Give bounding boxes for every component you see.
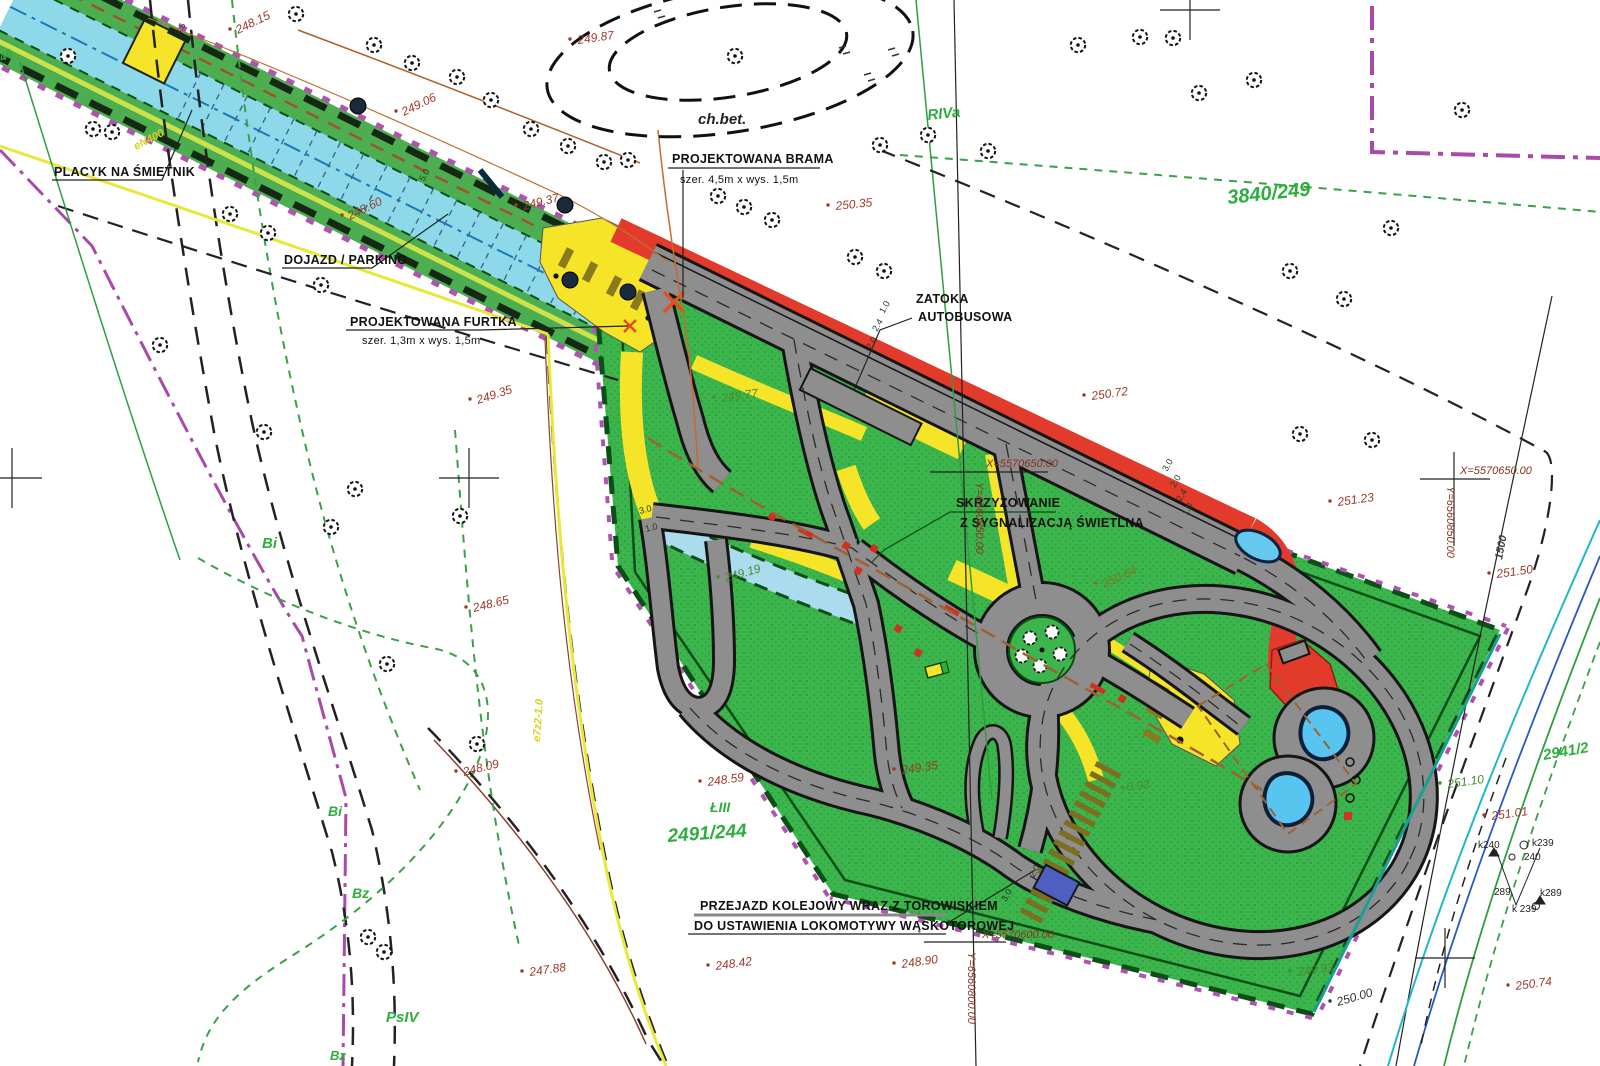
spot-elevation-dot [568,37,571,40]
coord-c3-y: Y=6560800.00 [965,952,977,1025]
coord-c3-x: X=5570600.00 [981,929,1055,941]
spot-elevation-dot [1328,499,1331,502]
survey-label: 240 [1524,852,1541,863]
spot-elevation-dot [468,397,471,400]
parcel-label: Bz [330,1048,346,1063]
spot-elevation-dot [706,963,709,966]
spot-elevation-dot [892,767,895,770]
survey-label: k 239 [1512,904,1537,915]
dojazd-label: DOJAZD / PARKING [284,253,407,267]
spot-elevation-dot [1328,999,1331,1002]
furtka-label: PROJEKTOWANA FURTKA [350,315,517,329]
coord-c2-x: X=5570650.00 [1459,465,1533,477]
spot-elevation-dot [1438,781,1441,784]
zatoka-label-2: AUTOBUSOWA [918,310,1012,324]
spot-elevation-dot [228,27,231,30]
spot-elevation-dot [520,969,523,972]
spot-elevation-dot [712,395,715,398]
parcel-label: Bi [262,535,278,552]
parcel-label: ŁIII [709,799,731,815]
brama-size-label: szer. 4,5m x wys. 1,5m [680,174,798,186]
parcel-label: PsIV [386,1009,421,1026]
skrzyzowanie-label-1: SKRZYŻOWANIE [956,495,1060,510]
spot-elevation-dot [1082,393,1085,396]
spot-elevation-dot [1487,571,1490,574]
przejazd-label-2: DO USTAWIENIA LOKOMOTYWY WĄSKOTOROWEJ [694,919,1014,933]
skrzyzowanie-label-2: Z SYGNALIZACJĄ ŚWIETLNĄ [960,515,1144,530]
chbet-label: ch.bet. [698,111,746,128]
spot-elevation-dot [1094,581,1097,584]
spot-elevation-dot [464,605,467,608]
survey-label: 289 [1494,887,1511,898]
placyk-label: PLACYK NA ŚMIETNIK [54,164,195,179]
parcel-label: RIVa [927,104,961,124]
parcel-label: Bi [328,803,343,819]
survey-label: k240 [1478,840,1500,851]
spot-elevation-dot [1288,969,1291,972]
spot-elevation-dot [1482,813,1485,816]
furtka-size-label: szer. 1,3m x wys. 1,5m [362,335,480,347]
parcel-label: Bz [352,885,369,901]
spot-elevation-dot [716,575,719,578]
przejazd-label-1: PRZEJAZD KOLEJOWY WRAZ Z TOROWISKIEM [700,899,998,913]
coord-c1-y: Y=6560850.00 [973,482,985,555]
zatoka-label-1: ZATOKA [916,292,969,306]
spot-elevation-dot [340,213,343,216]
spot-elevation-dot [394,109,397,112]
coord-c2-y: Y=6560850.00 [1444,486,1456,559]
spot-elevation-dot [892,961,895,964]
spot-elevation-dot [698,779,701,782]
survey-label: k289 [1540,888,1562,899]
spot-elevation-dot [1110,785,1113,788]
site-plan-map: PLACYK NA ŚMIETNIK DOJAZD / PARKING PROJ… [0,0,1600,1066]
site-plan-canvas: PLACYK NA ŚMIETNIK DOJAZD / PARKING PROJ… [0,0,1600,1066]
spot-elevation-dot [454,769,457,772]
coord-c1-x: X=5570650.00 [985,458,1059,470]
spot-elevation-dot [826,203,829,206]
spot-elevation-dot [514,203,517,206]
brama-label: PROJEKTOWANA BRAMA [672,152,834,166]
spot-elevation-dot [1506,983,1509,986]
survey-label: k239 [1532,838,1554,849]
